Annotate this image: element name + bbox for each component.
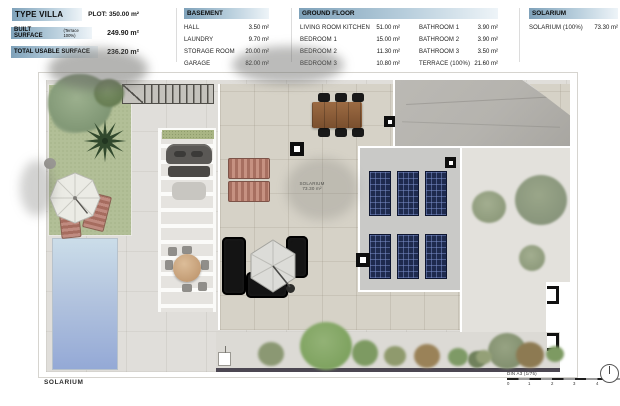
dining-table xyxy=(312,102,362,128)
solarium-title-bar: SOLARIUM xyxy=(529,8,618,19)
stairs-break-line xyxy=(123,85,143,103)
solarium-title: SOLARIUM xyxy=(532,10,566,17)
skylight-marker xyxy=(356,253,370,267)
type-villa-title: TYPE VILLA xyxy=(15,10,63,19)
ground-floor-item: BATHROOM 2 3.90 m² xyxy=(419,34,498,46)
patio-chair xyxy=(198,282,207,291)
header-divider-3 xyxy=(519,8,520,62)
room-name: LIVING ROOM KITCHEN xyxy=(300,25,370,31)
garden-bush xyxy=(476,350,492,364)
boulder xyxy=(44,158,56,169)
garden-post xyxy=(218,352,231,366)
skylight-marker xyxy=(290,142,304,156)
header: TYPE VILLA PLOT: 350.00 m² BUILT SURFACE… xyxy=(0,0,620,68)
header-divider-2 xyxy=(291,8,292,62)
ground-floor-item: BEDROOM 2 11.30 m² xyxy=(300,46,400,58)
solar-panel xyxy=(369,234,391,279)
garden-bush xyxy=(352,340,378,366)
summary-row-usable: TOTAL USABLE SURFACE 236.20 m² xyxy=(11,46,139,58)
scale-tick: 1 xyxy=(528,381,530,386)
room-name: GARAGE xyxy=(184,61,210,67)
scale-tick: 0 xyxy=(507,381,509,386)
solar-panel xyxy=(425,171,447,216)
room-name: STORAGE ROOM xyxy=(184,49,235,55)
villa-plan-page: { "header": { "left": { "title": "TYPE V… xyxy=(0,0,620,406)
scale-tick: 2 xyxy=(551,381,553,386)
patio-chair xyxy=(168,247,177,256)
floor-name-label: SOLARIUM xyxy=(44,379,83,386)
usable-surface-bar: TOTAL USABLE SURFACE xyxy=(11,46,98,58)
garden-tree-small xyxy=(94,79,124,107)
room-area: 82.00 m² xyxy=(245,61,269,67)
plot-value: PLOT: 350.00 m² xyxy=(88,11,139,18)
dining-chair xyxy=(352,128,364,137)
scale-tick: 4 xyxy=(596,381,598,386)
solar-panel xyxy=(397,234,419,279)
usable-surface-label: TOTAL USABLE SURFACE xyxy=(14,49,90,55)
skylight-marker xyxy=(384,116,395,127)
solar-panel xyxy=(397,171,419,216)
room-area: 73.30 m² xyxy=(594,25,618,31)
pergola-bench xyxy=(172,182,206,200)
basement-item: HALL 3.50 m² xyxy=(184,22,269,34)
room-area: 20.00 m² xyxy=(245,49,269,55)
room-area: 51.00 m² xyxy=(376,25,400,31)
ground-floor-item: BEDROOM 1 15.00 m² xyxy=(300,34,400,46)
area-label: SOLARIUM 73.30 m² xyxy=(292,181,332,191)
dining-chair xyxy=(318,128,330,137)
ground-floor-item: LIVING ROOM KITCHEN 51.00 m² xyxy=(300,22,400,34)
room-area: 15.00 m² xyxy=(376,37,400,43)
basement-title-bar: BASEMENT xyxy=(184,8,269,19)
room-area: 3.50 m² xyxy=(249,25,269,31)
solar-panel xyxy=(369,171,391,216)
palm-tree xyxy=(82,118,128,164)
room-name: BATHROOM 1 xyxy=(419,25,459,31)
room-name: BEDROOM 2 xyxy=(300,49,337,55)
basement-title: BASEMENT xyxy=(187,10,223,17)
garden-bush xyxy=(448,348,468,366)
usable-surface-value: 236.20 m² xyxy=(107,49,139,56)
outdoor-kitchen-hood xyxy=(166,144,212,164)
sun-lounger xyxy=(228,158,270,179)
parasol xyxy=(49,172,101,224)
room-name: BEDROOM 3 xyxy=(300,61,337,67)
solarium-block: SOLARIUM SOLARIUM (100%) 73.30 m² xyxy=(529,8,618,34)
room-name: HALL xyxy=(184,25,199,31)
basement-item: GARAGE 82.00 m² xyxy=(184,58,269,70)
room-area: 3.50 m² xyxy=(478,49,498,55)
garden-bush-rust xyxy=(516,342,544,368)
garden-bush xyxy=(258,342,284,366)
summary-row-type: TYPE VILLA PLOT: 350.00 m² xyxy=(12,8,139,21)
dining-chair xyxy=(335,93,347,102)
built-surface-label: BUILT SURFACE xyxy=(14,27,61,39)
ground-floor-item: TERRACE (100%) 21.60 m² xyxy=(419,58,498,70)
basement-item: STORAGE ROOM 20.00 m² xyxy=(184,46,269,58)
room-area: 9.70 m² xyxy=(249,37,269,43)
room-name: BATHROOM 3 xyxy=(419,49,459,55)
built-surface-bar: BUILT SURFACE (Terrace 100%) xyxy=(11,27,92,39)
pergola-planter xyxy=(162,130,214,139)
scale-tick: 3 xyxy=(573,381,575,386)
basement-item: LAUNDRY 9.70 m² xyxy=(184,34,269,46)
room-area: 3.90 m² xyxy=(478,25,498,31)
patio-chair xyxy=(201,260,209,270)
room-name: BEDROOM 1 xyxy=(300,37,337,43)
ground-floor-item: BEDROOM 3 10.80 m² xyxy=(300,58,400,70)
room-area: 10.80 m² xyxy=(376,61,400,67)
olive-tree xyxy=(472,191,506,223)
cantilever-umbrella xyxy=(246,238,300,294)
garden-bush-rust xyxy=(414,344,440,368)
room-name: BATHROOM 2 xyxy=(419,37,459,43)
dining-chair xyxy=(352,93,364,102)
olive-tree xyxy=(519,245,545,271)
header-divider-1 xyxy=(176,8,177,62)
room-name: LAUNDRY xyxy=(184,37,213,43)
garden-bush xyxy=(546,346,564,362)
built-surface-sublabel: (Terrace 100%) xyxy=(63,28,92,38)
ground-floor-title: GROUND FLOOR xyxy=(302,10,355,17)
ground-floor-item: BATHROOM 3 3.50 m² xyxy=(419,46,498,58)
patio-chair xyxy=(165,260,173,270)
stairs xyxy=(122,84,214,104)
summary-row-built: BUILT SURFACE (Terrace 100%) 249.90 m² xyxy=(11,27,139,39)
type-villa-bar: TYPE VILLA xyxy=(12,8,82,21)
ground-floor-block: GROUND FLOOR LIVING ROOM KITCHEN 51.00 m… xyxy=(299,8,498,19)
dining-chair xyxy=(335,128,347,137)
ground-floor-title-bar: GROUND FLOOR xyxy=(299,8,498,19)
wall-opening-marker xyxy=(547,286,559,304)
lounge-sofa xyxy=(222,237,246,295)
room-name: SOLARIUM (100%) xyxy=(529,25,583,31)
solarium-item: SOLARIUM (100%) 73.30 m² xyxy=(529,22,618,34)
patio-chair xyxy=(182,246,192,254)
skylight-marker xyxy=(445,157,456,168)
ground-floor-item: BATHROOM 1 3.90 m² xyxy=(419,22,498,34)
area-label-value: 73.30 m² xyxy=(292,186,332,191)
room-area: 11.30 m² xyxy=(377,49,400,55)
patio-chair xyxy=(182,284,192,292)
swimming-pool xyxy=(52,238,118,370)
dining-chair xyxy=(318,93,330,102)
round-table xyxy=(173,254,201,282)
olive-tree xyxy=(515,175,567,225)
room-area: 3.90 m² xyxy=(478,37,498,43)
north-arrow-icon xyxy=(600,364,619,383)
room-name: TERRACE (100%) xyxy=(419,61,470,67)
solar-panel xyxy=(425,234,447,279)
garden-bush xyxy=(384,346,406,366)
sun-lounger xyxy=(228,181,270,202)
outdoor-kitchen-counter xyxy=(168,166,210,177)
basement-block: BASEMENT HALL 3.50 m² LAUNDRY 9.70 m² ST… xyxy=(184,8,269,70)
built-surface-value: 249.90 m² xyxy=(107,30,139,37)
room-area: 21.60 m² xyxy=(474,61,498,67)
garden-tree-large xyxy=(300,322,352,370)
